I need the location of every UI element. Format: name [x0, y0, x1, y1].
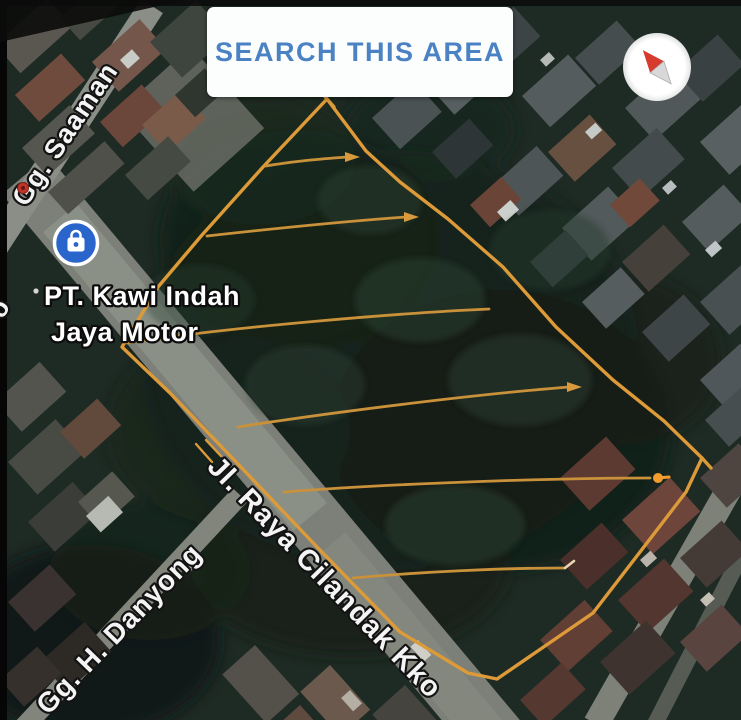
mini-red-marker[interactable] [18, 183, 29, 194]
compass-needle-icon [627, 37, 687, 97]
label-anchor-dot [33, 288, 38, 293]
place-marker[interactable] [55, 222, 98, 265]
search-this-area-button[interactable]: SEARCH THIS AREA [207, 7, 513, 97]
map-view: Gg. Saaman Jl. Raya Cilandak Kko Gg. H. … [0, 0, 741, 720]
place-label-line2: Jaya Motor [51, 317, 199, 347]
search-button-label: SEARCH THIS AREA [215, 37, 505, 68]
compass-button[interactable] [623, 33, 691, 101]
satellite-map-canvas[interactable]: Gg. Saaman Jl. Raya Cilandak Kko Gg. H. … [0, 0, 741, 720]
place-label-line1: PT. Kawi Indah [44, 281, 240, 311]
